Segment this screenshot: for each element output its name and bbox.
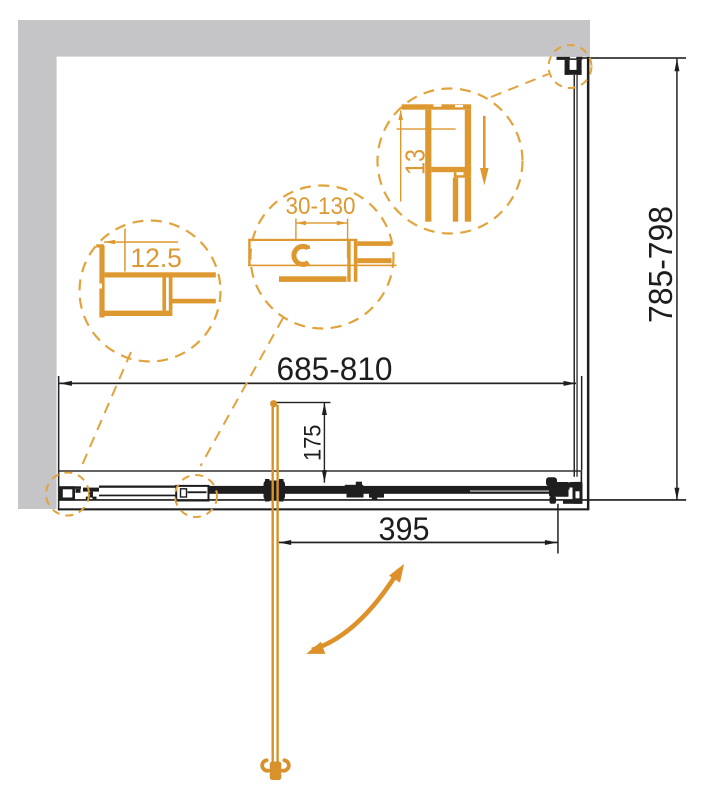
svg-text:30-130: 30-130 bbox=[286, 193, 356, 220]
svg-text:395: 395 bbox=[379, 511, 430, 547]
svg-text:13: 13 bbox=[400, 149, 431, 175]
svg-text:175: 175 bbox=[299, 425, 326, 462]
svg-text:785-798: 785-798 bbox=[642, 206, 679, 323]
svg-text:685-810: 685-810 bbox=[277, 351, 393, 387]
svg-text:12.5: 12.5 bbox=[130, 243, 182, 273]
